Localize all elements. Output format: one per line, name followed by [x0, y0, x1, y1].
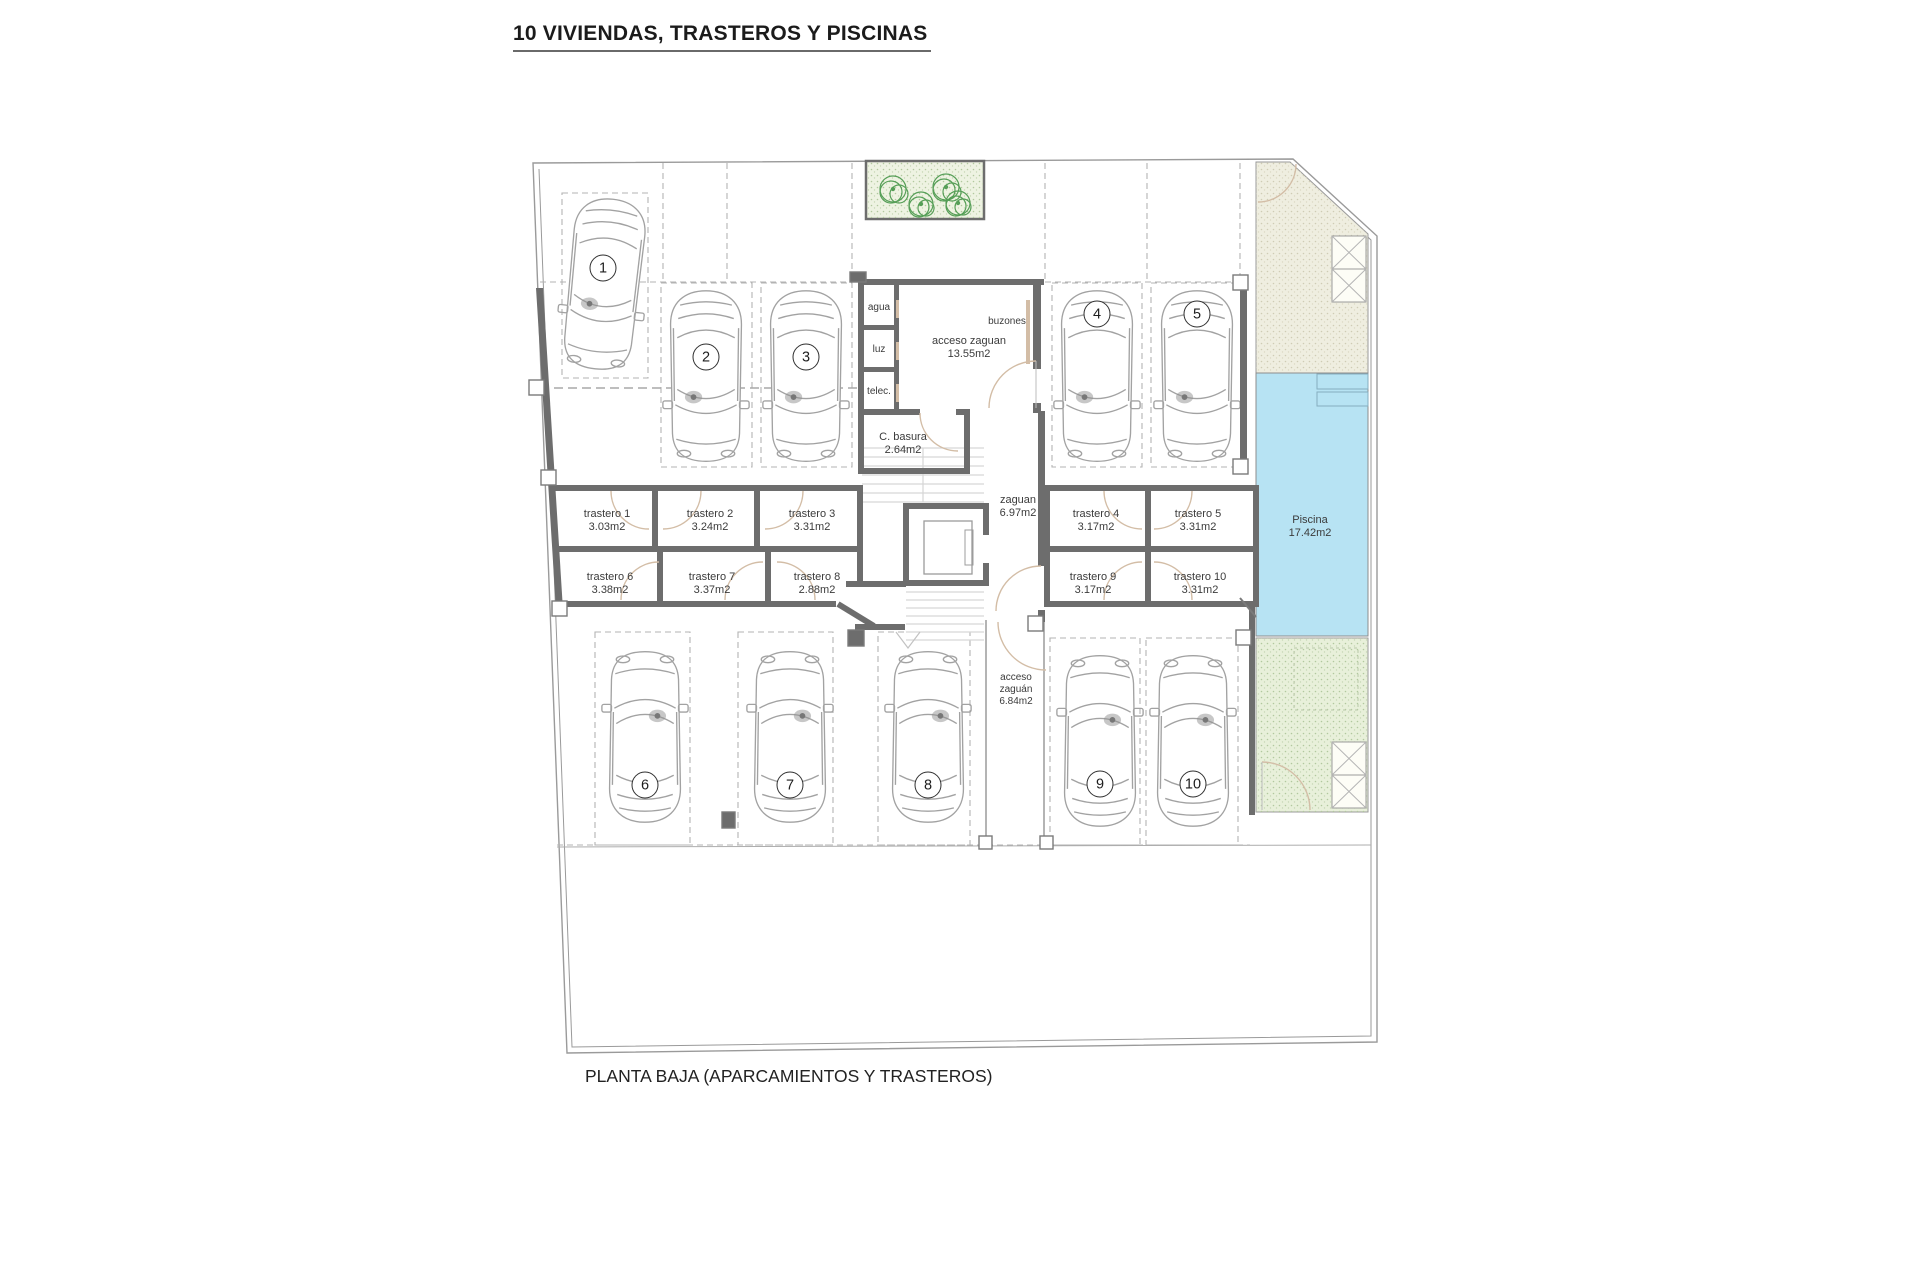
parking-number-9: 9: [1087, 771, 1114, 798]
floor-caption: PLANTA BAJA (APARCAMIENTOS Y TRASTEROS): [585, 1066, 992, 1087]
plan-title: 10 VIVIENDAS, TRASTEROS Y PISCINAS: [513, 22, 931, 52]
label-telec: telec.: [867, 386, 891, 398]
parking-number-4: 4: [1084, 301, 1111, 328]
parking-number-5: 5: [1184, 301, 1211, 328]
parking-number-1: 1: [590, 255, 617, 282]
label-trastero-5: trastero 53.31m2: [1175, 508, 1221, 534]
label-trastero-3: trastero 33.31m2: [789, 508, 835, 534]
label-piscina: Piscina17.42m2: [1289, 514, 1332, 540]
label-trastero-9: trastero 93.17m2: [1070, 571, 1116, 597]
buzones-wall: [1033, 285, 1041, 369]
pillar-dark-2: [722, 812, 735, 828]
car-1: [552, 195, 656, 374]
parking-number-2: 2: [693, 344, 720, 371]
parking-number-7: 7: [777, 772, 804, 799]
label-trastero-10: trastero 103.31m2: [1174, 571, 1227, 597]
label-trastero-4: trastero 43.17m2: [1073, 508, 1119, 534]
parking-number-6: 6: [632, 772, 659, 799]
label-trastero-1: trastero 13.03m2: [584, 508, 630, 534]
parking-number-8: 8: [915, 772, 942, 799]
left-wall: [536, 288, 563, 610]
label-trastero-6: trastero 63.38m2: [587, 571, 633, 597]
parking-number-10: 10: [1180, 771, 1207, 798]
car-2: [663, 291, 749, 462]
mailboxes-front: [1026, 300, 1030, 364]
label-trastero-2: trastero 23.24m2: [687, 508, 733, 534]
parking-number-3: 3: [793, 344, 820, 371]
car-3: [763, 291, 849, 462]
label-agua: agua: [868, 302, 890, 314]
label-luz: luz: [873, 344, 886, 356]
label-acceso-zaguan-sur: accesozaguán6.84m2: [999, 672, 1032, 708]
floor-plan-drawing: [0, 0, 1920, 1280]
pool: [1256, 373, 1368, 636]
car-10: [1150, 656, 1236, 827]
pillar-dark-3: [850, 272, 866, 282]
right-garage-wall: [1240, 279, 1247, 469]
label-zaguan: zaguan6.97m2: [1000, 494, 1037, 520]
elevator: [906, 506, 991, 583]
floor-plan-page: 10 VIVIENDAS, TRASTEROS Y PISCINAS PLANT…: [0, 0, 1920, 1280]
label-trastero-7: trastero 73.37m2: [689, 571, 735, 597]
label-trastero-8: trastero 82.88m2: [794, 571, 840, 597]
label-acceso-zaguan: acceso zaguan13.55m2: [932, 335, 1006, 361]
label-c-basura: C. basura2.64m2: [879, 431, 927, 457]
pillar-dark-1: [848, 630, 864, 646]
south-corridor: [986, 620, 1044, 845]
car-9: [1057, 656, 1143, 827]
label-buzones: buzones: [988, 316, 1026, 328]
